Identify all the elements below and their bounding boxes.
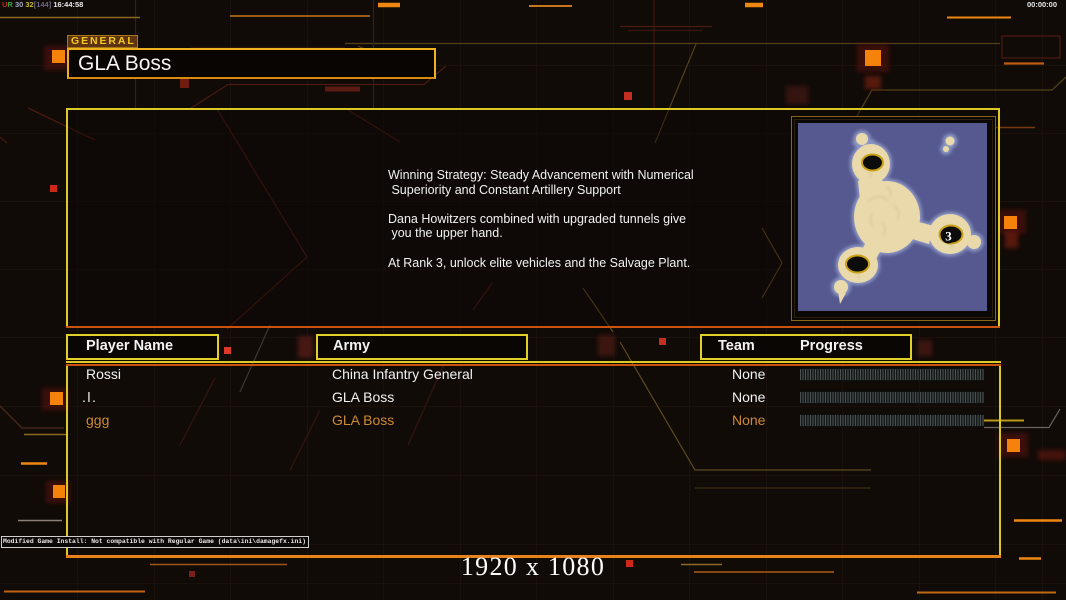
- svg-text:3: 3: [945, 229, 952, 244]
